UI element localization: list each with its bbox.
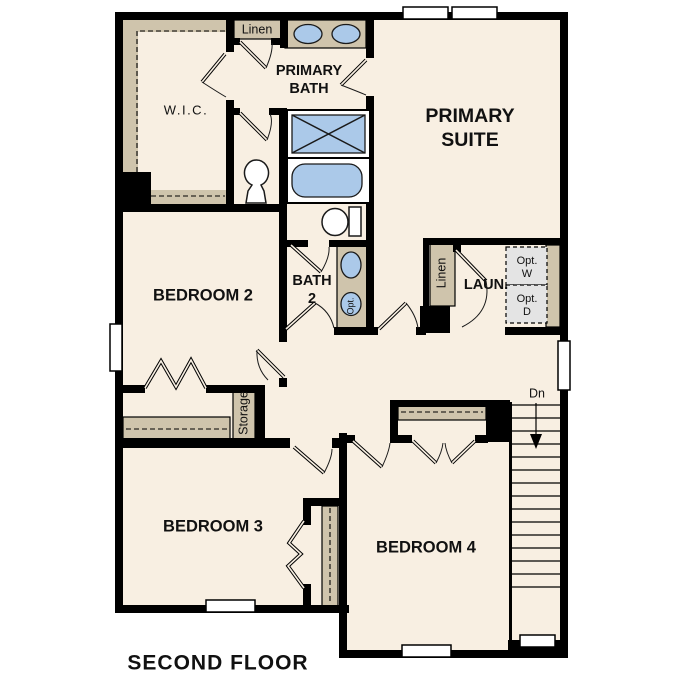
primary-suite-label-line2: SUITE [441,129,498,151]
laundry-label: LAUN. [464,277,508,293]
opt-washer-label-line2: W [522,268,533,280]
wic-shelf-left [123,20,138,172]
window [520,635,555,647]
bedroom3-label: BEDROOM 3 [163,517,263,535]
bath2-sink [341,252,361,278]
wic-shelf-bottom [151,190,226,205]
window [452,7,497,19]
bedroom2-label: BEDROOM 2 [153,286,253,304]
linen-top-label: Linen [242,22,273,36]
opt-dryer-label-line1: Opt. [517,293,538,305]
storage-label: Storage [236,391,250,435]
window [403,7,448,19]
linen-laundry-label: Linen [434,258,448,289]
window [110,324,122,371]
bathtub [292,164,362,197]
vanity-sink [294,25,322,44]
vanity-sink [332,25,360,44]
opt-washer-label-line1: Opt. [517,255,538,267]
floor-title: SECOND FLOOR [127,652,308,675]
opt-dryer-label-line2: D [523,306,531,318]
pedestal-sink [245,160,269,203]
window [206,600,255,612]
wic-shelf-top [123,20,226,32]
bath2-label-line2: 2 [308,291,316,307]
floor-plan-drawing: W.I.C. Linen PRIMARY BATH PRIMARY SUITE … [0,0,687,687]
toilet-bowl [322,209,348,236]
bath2-label-line1: BATH [292,273,331,289]
toilet-tank [349,207,361,236]
stairs-down-label: Dn [529,386,545,400]
wic-label: W.I.C. [164,102,208,117]
floor-plan-page: W.I.C. Linen PRIMARY BATH PRIMARY SUITE … [0,0,687,687]
laundry-counter [546,245,560,327]
bedroom4-label: BEDROOM 4 [376,538,477,556]
primary-suite-label-line1: PRIMARY [425,105,514,127]
primary-bath-label-line1: PRIMARY [276,63,343,79]
window [558,341,570,390]
window [402,645,451,657]
optional-sink-label: Opt. [345,297,355,314]
primary-bath-label-line2: BATH [289,81,328,97]
